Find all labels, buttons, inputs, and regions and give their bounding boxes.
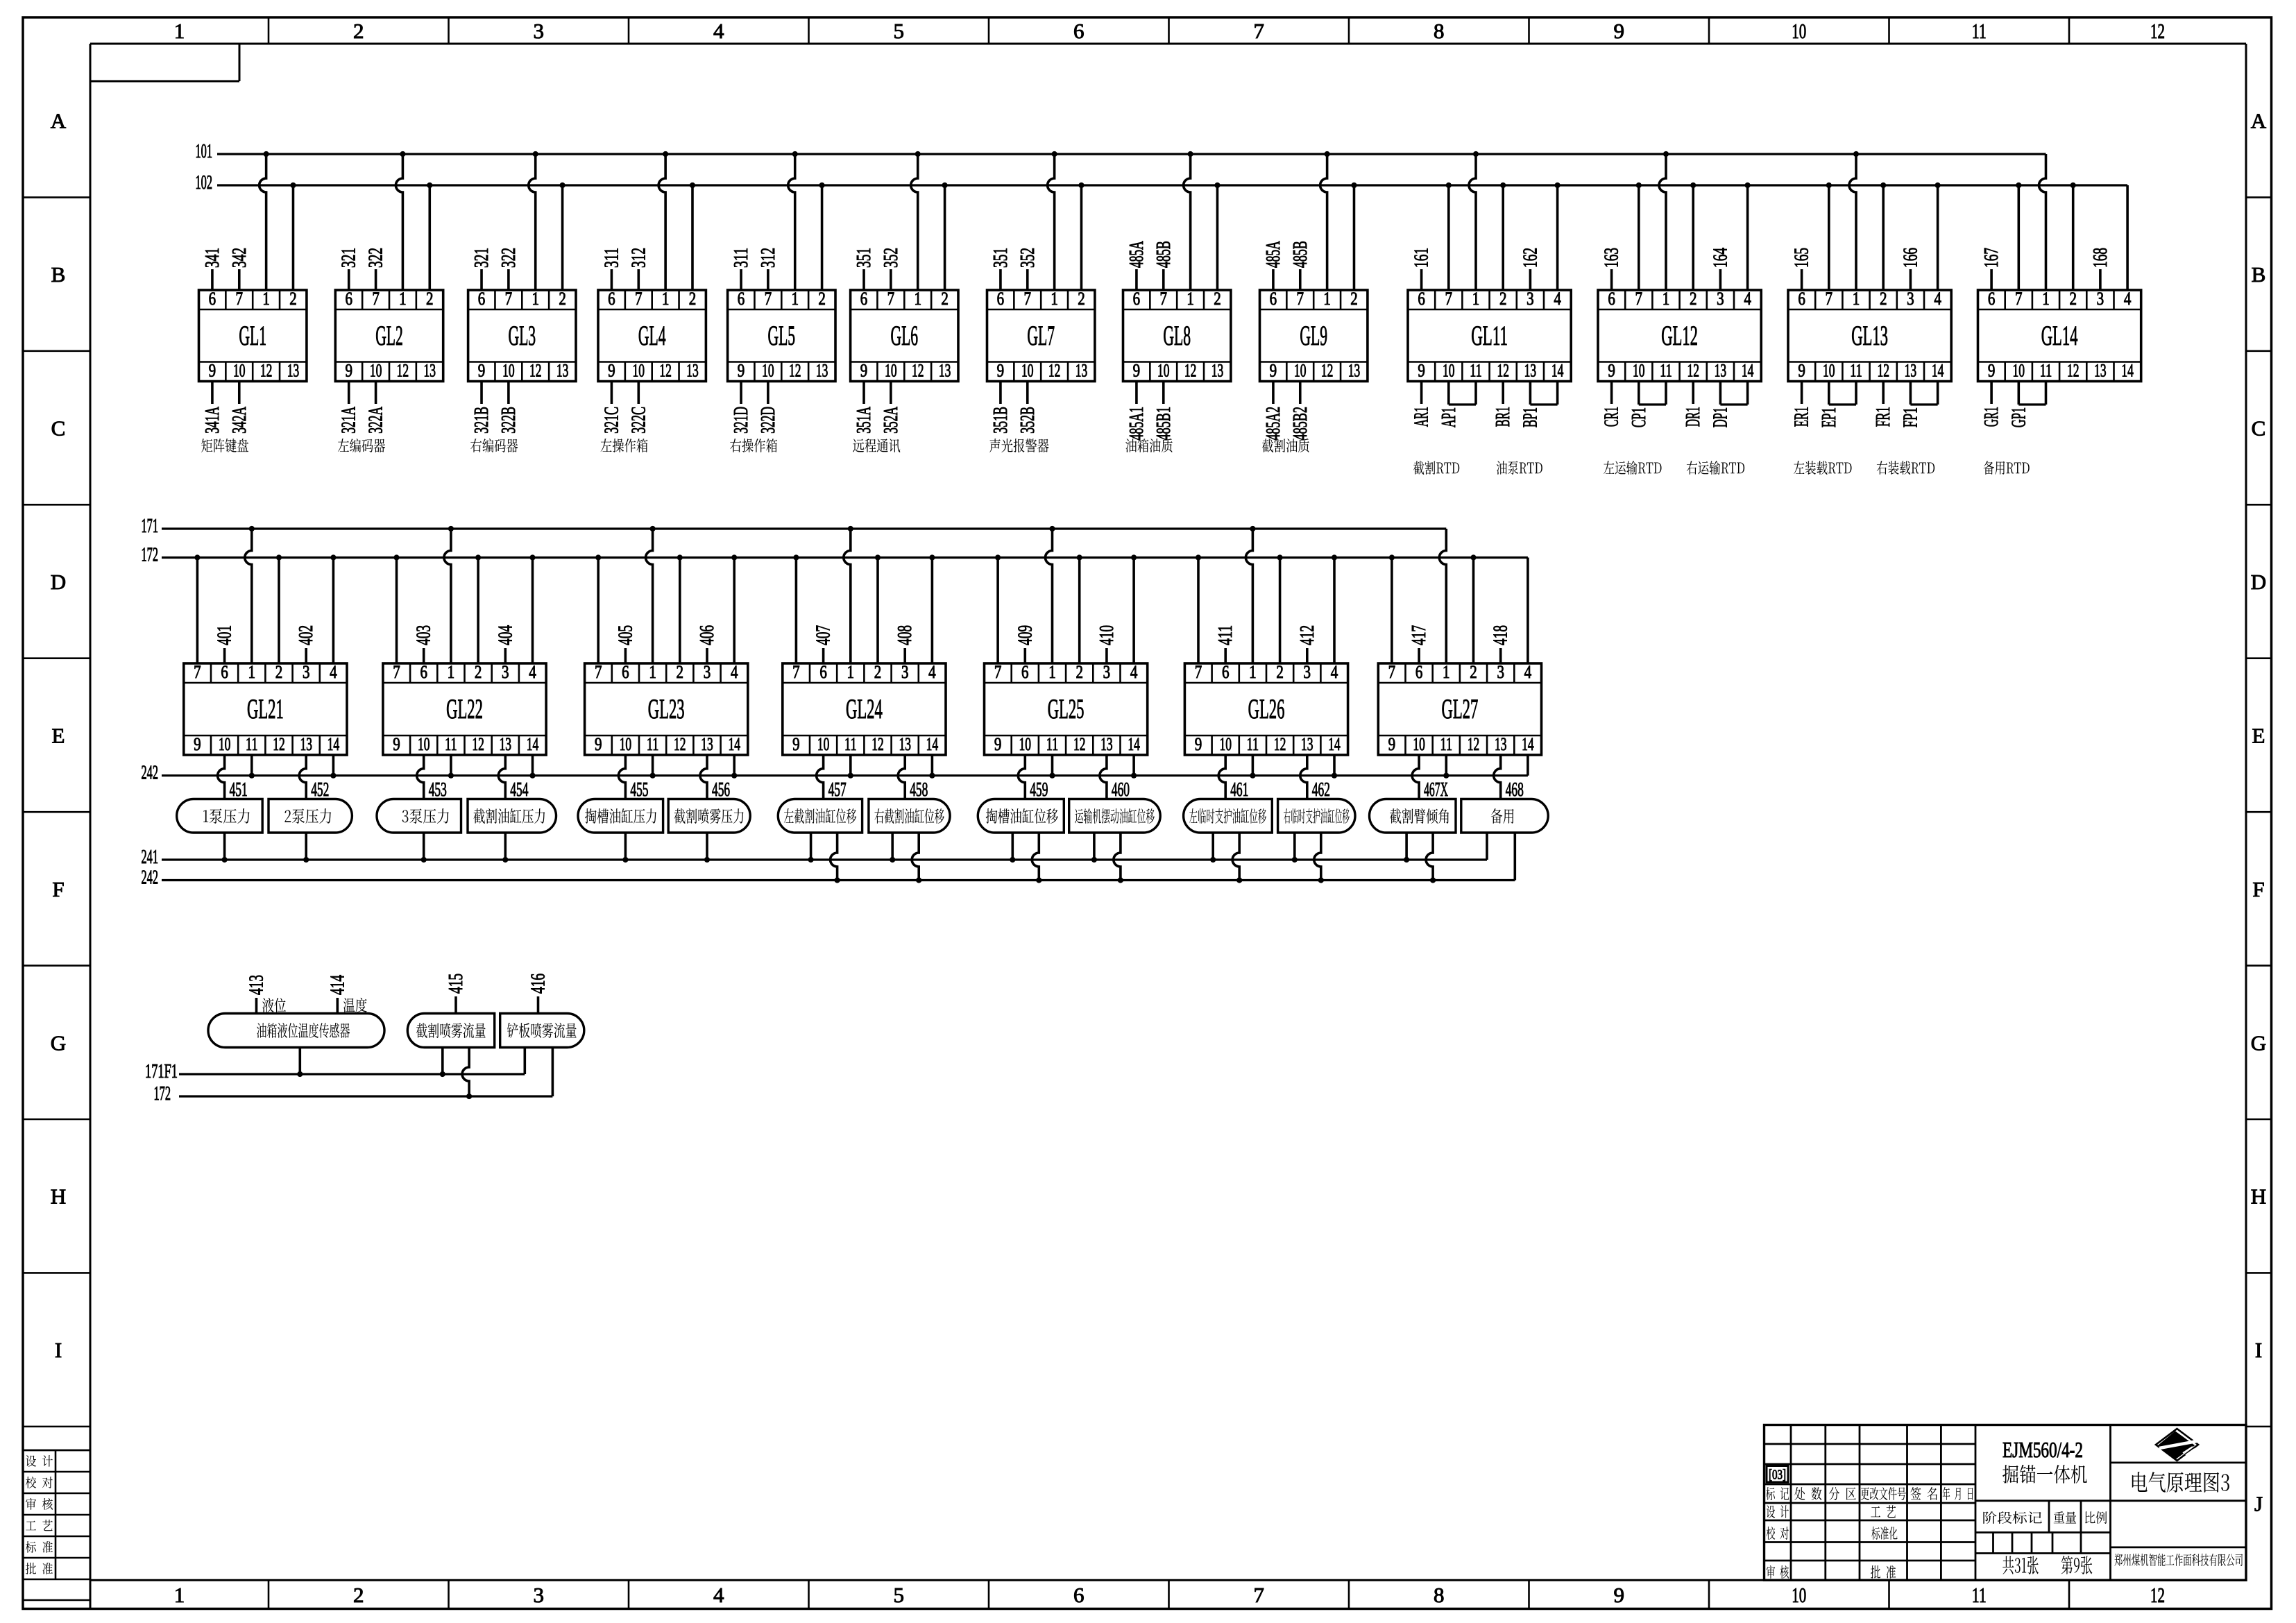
svg-text:101: 101 (196, 141, 213, 162)
svg-text:9: 9 (393, 734, 400, 754)
svg-text:13: 13 (424, 361, 436, 381)
svg-text:13: 13 (1495, 734, 1507, 754)
svg-text:12: 12 (1321, 361, 1334, 381)
svg-text:12: 12 (871, 734, 884, 754)
svg-text:2: 2 (1499, 289, 1507, 309)
svg-text:I: I (55, 1338, 62, 1362)
svg-text:G: G (2251, 1030, 2266, 1055)
svg-text:13: 13 (1075, 361, 1088, 381)
svg-text:GL9: GL9 (1300, 320, 1327, 351)
svg-text:9: 9 (1988, 361, 1996, 381)
svg-text:4: 4 (1934, 289, 1941, 309)
svg-text:1: 1 (791, 289, 799, 309)
svg-text:7: 7 (194, 662, 201, 682)
svg-text:10: 10 (885, 361, 897, 381)
svg-text:6: 6 (209, 289, 216, 309)
svg-text:2: 2 (1078, 289, 1085, 309)
svg-text:2: 2 (818, 289, 826, 309)
svg-text:14: 14 (2121, 361, 2134, 381)
svg-text:12: 12 (789, 361, 801, 381)
svg-text:406: 406 (697, 625, 718, 645)
svg-text:6: 6 (997, 289, 1005, 309)
svg-text:9: 9 (478, 361, 486, 381)
svg-text:402: 402 (296, 625, 317, 645)
svg-text:9: 9 (1608, 361, 1615, 381)
svg-text:13: 13 (1211, 361, 1224, 381)
svg-text:166: 166 (1900, 248, 1921, 268)
svg-text:9: 9 (1798, 361, 1805, 381)
svg-text:165: 165 (1792, 248, 1813, 268)
svg-text:462: 462 (1312, 779, 1330, 801)
svg-text:11: 11 (445, 734, 457, 754)
svg-text:10: 10 (219, 734, 231, 754)
svg-text:403: 403 (414, 625, 435, 645)
svg-text:3: 3 (1304, 662, 1311, 682)
svg-text:9: 9 (1418, 361, 1425, 381)
svg-text:411: 411 (1215, 625, 1236, 645)
svg-text:6: 6 (420, 662, 427, 682)
svg-text:GP1: GP1 (2008, 407, 2030, 427)
svg-text:485A1: 485A1 (1126, 407, 1148, 441)
svg-text:341A: 341A (202, 407, 223, 434)
svg-text:322C: 322C (628, 407, 649, 434)
svg-text:7: 7 (1195, 662, 1202, 682)
svg-text:7: 7 (887, 289, 895, 309)
svg-text:AP1: AP1 (1438, 407, 1460, 427)
svg-text:412: 412 (1297, 625, 1318, 645)
svg-text:242: 242 (142, 867, 159, 889)
svg-text:A: A (2251, 109, 2267, 133)
svg-text:459: 459 (1030, 779, 1048, 801)
svg-text:342A: 342A (229, 407, 250, 434)
svg-text:3: 3 (502, 662, 509, 682)
svg-text:1: 1 (1051, 289, 1058, 309)
svg-text:7: 7 (2015, 289, 2023, 309)
svg-text:10: 10 (1021, 361, 1034, 381)
svg-text:9: 9 (1133, 361, 1141, 381)
svg-text:6: 6 (221, 662, 228, 682)
svg-text:7: 7 (1254, 1583, 1265, 1607)
svg-text:10: 10 (1633, 361, 1645, 381)
svg-text:10: 10 (633, 361, 645, 381)
svg-text:1: 1 (532, 289, 539, 309)
svg-text:8: 8 (1434, 1583, 1445, 1607)
svg-text:GL3: GL3 (509, 320, 536, 351)
svg-text:6: 6 (1415, 662, 1423, 682)
svg-text:418: 418 (1490, 625, 1512, 645)
svg-text:10: 10 (1792, 19, 1806, 43)
svg-text:12: 12 (1073, 734, 1086, 754)
svg-text:322B: 322B (498, 407, 520, 434)
svg-text:GR1: GR1 (1981, 407, 2002, 427)
svg-text:167: 167 (1981, 248, 2002, 268)
svg-text:14: 14 (1522, 734, 1534, 754)
svg-text:10: 10 (1157, 361, 1170, 381)
svg-text:451: 451 (230, 779, 248, 801)
svg-text:1: 1 (1323, 289, 1331, 309)
svg-text:2: 2 (1214, 289, 1221, 309)
svg-text:321C: 321C (601, 407, 622, 434)
svg-text:10: 10 (418, 734, 430, 754)
svg-text:6: 6 (622, 662, 629, 682)
svg-text:[03]: [03] (1769, 1468, 1786, 1483)
svg-text:13: 13 (287, 361, 300, 381)
svg-text:EP1: EP1 (1819, 407, 1840, 427)
svg-text:1: 1 (1663, 289, 1670, 309)
svg-text:1: 1 (262, 289, 270, 309)
svg-text:13: 13 (939, 361, 951, 381)
svg-text:417: 417 (1409, 625, 1430, 645)
svg-text:GL26: GL26 (1248, 693, 1285, 724)
svg-text:3: 3 (303, 662, 310, 682)
svg-text:351A: 351A (853, 407, 875, 434)
svg-text:11: 11 (2040, 361, 2052, 381)
svg-text:13: 13 (2094, 361, 2107, 381)
svg-text:ER1: ER1 (1792, 407, 1813, 427)
svg-text:GL24: GL24 (846, 693, 883, 724)
svg-text:7: 7 (1826, 289, 1833, 309)
svg-text:341: 341 (202, 248, 223, 268)
svg-text:13: 13 (556, 361, 569, 381)
svg-text:12: 12 (2150, 1583, 2165, 1607)
svg-text:7: 7 (1445, 289, 1453, 309)
svg-text:H: H (51, 1184, 66, 1209)
svg-text:E: E (2252, 723, 2265, 747)
svg-text:1: 1 (649, 662, 656, 682)
svg-text:2: 2 (2069, 289, 2077, 309)
svg-text:485B1: 485B1 (1153, 407, 1175, 441)
svg-text:4: 4 (928, 662, 936, 682)
svg-text:457: 457 (828, 779, 847, 801)
svg-text:1: 1 (399, 289, 407, 309)
svg-text:7: 7 (372, 289, 380, 309)
svg-text:11: 11 (1972, 1583, 1987, 1607)
svg-text:461: 461 (1230, 779, 1248, 801)
svg-text:9: 9 (595, 734, 602, 754)
svg-text:485A: 485A (1126, 241, 1148, 268)
svg-text:F: F (52, 877, 64, 901)
svg-text:J: J (2254, 1492, 2263, 1516)
svg-text:3: 3 (901, 662, 909, 682)
svg-text:322: 322 (498, 248, 520, 268)
svg-text:485A2: 485A2 (1263, 407, 1284, 441)
svg-text:456: 456 (712, 779, 730, 801)
svg-text:CR1: CR1 (1601, 407, 1623, 427)
svg-text:7: 7 (1297, 289, 1304, 309)
svg-text:7: 7 (595, 662, 602, 682)
svg-text:FR1: FR1 (1873, 407, 1894, 427)
svg-text:321: 321 (471, 248, 493, 268)
svg-text:2: 2 (941, 289, 949, 309)
svg-text:GL21: GL21 (247, 693, 284, 724)
svg-text:6: 6 (1073, 1583, 1085, 1607)
svg-text:9: 9 (738, 361, 745, 381)
svg-text:14: 14 (926, 734, 939, 754)
svg-text:2: 2 (1276, 662, 1284, 682)
svg-text:14: 14 (527, 734, 539, 754)
svg-text:458: 458 (910, 779, 928, 801)
svg-text:1: 1 (174, 1583, 185, 1607)
svg-text:6: 6 (1608, 289, 1615, 309)
svg-text:11: 11 (1972, 19, 1987, 43)
svg-text:12: 12 (2067, 361, 2080, 381)
svg-text:GL7: GL7 (1027, 320, 1055, 351)
svg-text:2: 2 (1690, 289, 1697, 309)
svg-text:322D: 322D (758, 407, 779, 434)
svg-text:10: 10 (502, 361, 515, 381)
svg-text:GL8: GL8 (1163, 320, 1191, 351)
svg-text:10: 10 (1294, 361, 1307, 381)
svg-text:485B: 485B (1290, 241, 1311, 268)
svg-text:10: 10 (1219, 734, 1232, 754)
svg-text:7: 7 (236, 289, 244, 309)
svg-text:452: 452 (311, 779, 329, 801)
svg-text:11: 11 (1247, 734, 1259, 754)
svg-text:6: 6 (1021, 662, 1029, 682)
svg-text:161: 161 (1411, 248, 1433, 268)
svg-text:11: 11 (647, 734, 659, 754)
svg-text:453: 453 (429, 779, 447, 801)
svg-text:BR1: BR1 (1493, 407, 1514, 427)
svg-text:GL22: GL22 (446, 693, 483, 724)
svg-text:11: 11 (1440, 734, 1453, 754)
svg-text:162: 162 (1520, 248, 1541, 268)
svg-text:11: 11 (844, 734, 857, 754)
svg-text:5: 5 (894, 19, 905, 43)
svg-text:1: 1 (1443, 662, 1450, 682)
svg-text:168: 168 (2090, 248, 2111, 268)
svg-text:1: 1 (914, 289, 921, 309)
svg-text:163: 163 (1601, 248, 1623, 268)
svg-text:5: 5 (894, 1583, 905, 1607)
svg-text:13: 13 (500, 734, 512, 754)
svg-text:241: 241 (142, 847, 159, 868)
svg-text:4: 4 (1744, 289, 1751, 309)
svg-text:1: 1 (1249, 662, 1257, 682)
svg-text:7: 7 (393, 662, 400, 682)
svg-text:BP1: BP1 (1520, 407, 1541, 427)
svg-text:321D: 321D (731, 407, 752, 434)
svg-text:455: 455 (630, 779, 648, 801)
svg-text:460: 460 (1112, 779, 1130, 801)
svg-text:7: 7 (635, 289, 643, 309)
svg-text:1: 1 (1048, 662, 1056, 682)
svg-text:GL11: GL11 (1471, 320, 1508, 351)
svg-text:9: 9 (997, 361, 1005, 381)
svg-text:13: 13 (686, 361, 699, 381)
svg-text:4: 4 (1554, 289, 1561, 309)
svg-text:415: 415 (445, 974, 467, 994)
svg-text:GL12: GL12 (1661, 320, 1698, 351)
svg-text:12: 12 (1687, 361, 1699, 381)
svg-text:1: 1 (174, 19, 185, 43)
svg-text:485B: 485B (1153, 241, 1175, 268)
svg-text:312: 312 (628, 248, 649, 268)
svg-text:9: 9 (1614, 1583, 1625, 1607)
svg-text:2: 2 (475, 662, 482, 682)
svg-text:4: 4 (529, 662, 536, 682)
svg-text:C: C (51, 416, 66, 441)
svg-text:GL13: GL13 (1851, 320, 1888, 351)
svg-text:12: 12 (1048, 361, 1061, 381)
svg-text:9: 9 (792, 734, 800, 754)
svg-text:322A: 322A (366, 407, 387, 434)
svg-text:352B: 352B (1017, 407, 1039, 434)
svg-text:6: 6 (1988, 289, 1996, 309)
svg-text:1: 1 (448, 662, 455, 682)
svg-text:2: 2 (289, 289, 297, 309)
svg-text:14: 14 (728, 734, 740, 754)
svg-text:9: 9 (209, 361, 216, 381)
svg-text:10: 10 (620, 734, 632, 754)
svg-text:4: 4 (2124, 289, 2132, 309)
svg-text:1: 1 (2042, 289, 2050, 309)
svg-text:11: 11 (246, 734, 258, 754)
svg-text:242: 242 (142, 763, 159, 784)
svg-text:10: 10 (1792, 1583, 1806, 1607)
svg-text:6: 6 (478, 289, 486, 309)
svg-text:9: 9 (860, 361, 868, 381)
svg-text:D: D (51, 570, 66, 594)
svg-text:2: 2 (1880, 289, 1887, 309)
svg-text:12: 12 (1468, 734, 1480, 754)
svg-text:311: 311 (731, 248, 752, 268)
svg-text:9: 9 (345, 361, 352, 381)
svg-text:13: 13 (816, 361, 828, 381)
svg-text:6: 6 (345, 289, 352, 309)
svg-text:12: 12 (1497, 361, 1509, 381)
svg-text:2: 2 (874, 662, 882, 682)
svg-text:6: 6 (608, 289, 615, 309)
svg-text:13: 13 (1100, 734, 1113, 754)
svg-text:2: 2 (677, 662, 684, 682)
svg-text:11: 11 (1850, 361, 1862, 381)
svg-text:10: 10 (1019, 734, 1032, 754)
svg-text:10: 10 (817, 734, 830, 754)
svg-text:1: 1 (248, 662, 256, 682)
svg-text:12: 12 (1877, 361, 1889, 381)
svg-text:352: 352 (881, 248, 902, 268)
svg-text:485A: 485A (1263, 241, 1284, 268)
svg-text:11: 11 (1660, 361, 1672, 381)
svg-text:410: 410 (1096, 625, 1118, 645)
svg-text:12: 12 (912, 361, 924, 381)
svg-text:GL14: GL14 (2041, 320, 2078, 351)
svg-text:6: 6 (1222, 662, 1230, 682)
svg-text:321B: 321B (471, 407, 493, 434)
svg-text:1: 1 (1472, 289, 1480, 309)
svg-text:E: E (52, 723, 65, 747)
svg-text:D: D (2251, 570, 2266, 594)
svg-text:454: 454 (510, 779, 528, 801)
svg-text:172: 172 (154, 1083, 171, 1105)
svg-text:404: 404 (495, 625, 516, 645)
svg-text:12: 12 (1274, 734, 1286, 754)
svg-text:2: 2 (1075, 662, 1083, 682)
svg-text:6: 6 (1133, 289, 1141, 309)
svg-text:7: 7 (505, 289, 513, 309)
svg-text:B: B (2252, 262, 2266, 287)
svg-text:11: 11 (1470, 361, 1482, 381)
svg-text:12: 12 (529, 361, 542, 381)
svg-text:13: 13 (300, 734, 312, 754)
svg-text:10: 10 (1443, 361, 1455, 381)
svg-text:1: 1 (1853, 289, 1860, 309)
svg-text:4: 4 (1524, 662, 1532, 682)
svg-text:467X: 467X (1424, 779, 1448, 801)
svg-text:2: 2 (426, 289, 434, 309)
svg-text:13: 13 (701, 734, 713, 754)
svg-text:468: 468 (1506, 779, 1524, 801)
svg-text:7: 7 (1635, 289, 1643, 309)
svg-text:4: 4 (330, 662, 337, 682)
svg-text:GL25: GL25 (1048, 693, 1085, 724)
svg-text:164: 164 (1710, 248, 1731, 268)
svg-text:11: 11 (1046, 734, 1059, 754)
svg-text:9: 9 (194, 734, 201, 754)
svg-text:2: 2 (353, 19, 364, 43)
svg-text:14: 14 (1932, 361, 1944, 381)
svg-text:DP1: DP1 (1710, 407, 1731, 427)
svg-text:14: 14 (1128, 734, 1140, 754)
svg-text:2: 2 (275, 662, 283, 682)
svg-text:7: 7 (994, 662, 1002, 682)
svg-text:7: 7 (765, 289, 772, 309)
svg-text:7: 7 (1388, 662, 1396, 682)
svg-text:3: 3 (1717, 289, 1724, 309)
svg-text:12: 12 (2150, 19, 2165, 43)
svg-text:352: 352 (1017, 248, 1039, 268)
svg-text:7: 7 (1160, 289, 1168, 309)
svg-text:351: 351 (990, 248, 1012, 268)
svg-text:351B: 351B (990, 407, 1012, 434)
svg-text:342: 342 (229, 248, 250, 268)
svg-text:12: 12 (273, 734, 285, 754)
svg-text:10: 10 (233, 361, 246, 381)
svg-text:408: 408 (894, 625, 916, 645)
svg-text:10: 10 (2013, 361, 2025, 381)
svg-text:F: F (2252, 877, 2264, 901)
svg-text:12: 12 (674, 734, 686, 754)
svg-text:6: 6 (860, 289, 868, 309)
svg-text:6: 6 (738, 289, 745, 309)
svg-text:416: 416 (528, 974, 550, 994)
svg-text:14: 14 (328, 734, 340, 754)
svg-text:CP1: CP1 (1629, 407, 1650, 427)
svg-text:12: 12 (397, 361, 409, 381)
svg-text:8: 8 (1434, 19, 1445, 43)
svg-text:6: 6 (1270, 289, 1277, 309)
svg-text:13: 13 (1905, 361, 1917, 381)
svg-text:10: 10 (370, 361, 382, 381)
svg-text:I: I (2255, 1338, 2262, 1362)
svg-text:351: 351 (853, 248, 875, 268)
svg-text:9: 9 (1270, 361, 1277, 381)
svg-text:7: 7 (792, 662, 800, 682)
svg-text:H: H (2251, 1184, 2266, 1209)
svg-text:6: 6 (1073, 19, 1085, 43)
svg-text:9: 9 (1195, 734, 1202, 754)
svg-text:AR1: AR1 (1411, 407, 1433, 427)
svg-text:14: 14 (1551, 361, 1564, 381)
svg-text:G: G (51, 1030, 66, 1055)
svg-text:3: 3 (2097, 289, 2104, 309)
svg-text:3: 3 (1497, 662, 1504, 682)
svg-text:C: C (2252, 416, 2266, 441)
svg-text:171: 171 (142, 516, 159, 537)
svg-text:GL6: GL6 (891, 320, 919, 351)
svg-text:FP1: FP1 (1900, 407, 1921, 427)
